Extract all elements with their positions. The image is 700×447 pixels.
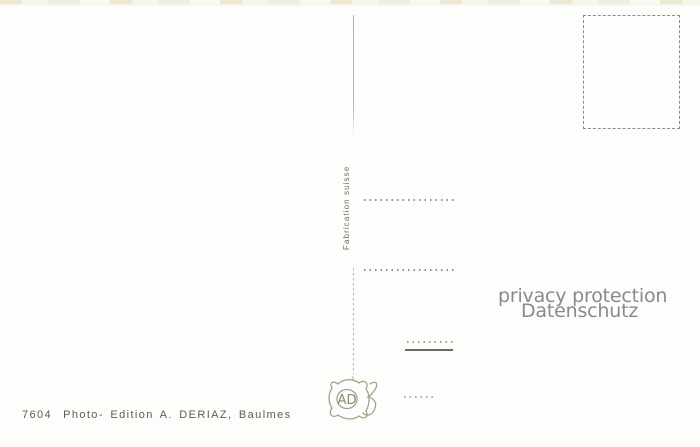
address-line-3	[407, 341, 453, 343]
address-underline	[405, 349, 453, 351]
address-line-1	[364, 199, 455, 201]
fabrication-suisse-label: Fabrication suisse	[342, 166, 351, 250]
stamp-box	[583, 15, 680, 129]
monogram-right-flourish	[363, 382, 377, 415]
monogram-letters: AD	[338, 393, 357, 408]
publisher-imprint: 7604Photo- Edition A. DERIAZ, Baulmes	[22, 409, 292, 421]
center-divider-upper	[353, 15, 354, 137]
paper-deckle-edge-fade	[0, 4, 700, 7]
address-line-2	[364, 269, 455, 271]
imprint-number: 7604	[22, 409, 52, 421]
postcard-back: Fabrication suisse privacy protection Da…	[0, 0, 700, 447]
privacy-watermark-line2: Datenschutz	[521, 302, 638, 321]
imprint-publisher: Photo- Edition A. DERIAZ, Baulmes	[63, 409, 291, 421]
address-line-4	[404, 396, 435, 398]
deriaz-monogram-logo: AD	[326, 376, 384, 422]
center-divider-lower	[353, 268, 354, 374]
